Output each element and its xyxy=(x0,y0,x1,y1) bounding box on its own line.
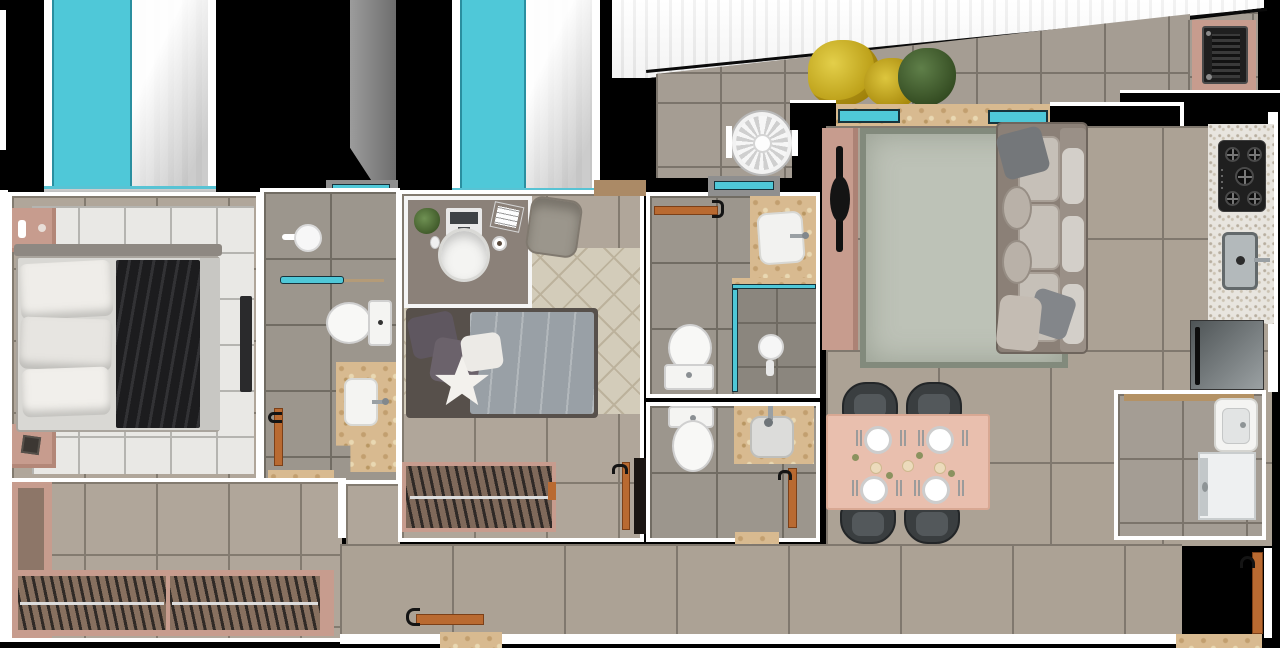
lounge-chair xyxy=(524,195,584,260)
living-window-glass-1 xyxy=(838,109,900,123)
bedroom1-curtain xyxy=(132,0,210,186)
sofa-back-pad-1 xyxy=(1062,148,1084,204)
bathroom2-door-leaf xyxy=(654,206,718,215)
grill-knob2 xyxy=(1206,74,1212,80)
candle-3 xyxy=(934,462,946,474)
sofa-bolster-2 xyxy=(1002,240,1032,284)
plate-1 xyxy=(864,426,892,454)
fan-bracket-right xyxy=(792,128,798,156)
fan-bracket-left xyxy=(726,126,732,158)
burner-4 xyxy=(1247,191,1262,206)
kitchen-faucet-base xyxy=(1236,256,1245,265)
shower-glass-top xyxy=(732,284,816,289)
bedroom2-closet-rod xyxy=(410,496,548,499)
window1-jamb-right xyxy=(208,0,216,186)
bathroom2-vent-window-glass xyxy=(714,181,774,190)
tv-base-icon xyxy=(830,176,850,222)
vanity2-basin xyxy=(756,210,806,265)
hanging-rod-1 xyxy=(20,602,164,605)
burner-center xyxy=(1235,167,1254,186)
entrance-threshold xyxy=(440,632,502,648)
gas-cooktop-icon xyxy=(1218,140,1266,212)
window2-jamb-left xyxy=(452,0,460,188)
bed1-duvet-fold xyxy=(200,258,220,430)
toilet2-button xyxy=(686,372,692,378)
bathroom2-vent-window-frame xyxy=(708,176,780,196)
vent-shaft xyxy=(350,0,396,180)
burner-2 xyxy=(1247,147,1262,162)
bedroom2-window-glass xyxy=(460,0,526,188)
cutlery-1 xyxy=(856,430,858,446)
cutlery-2 xyxy=(918,430,920,446)
service-door-wall xyxy=(1264,548,1272,638)
garnish-dot-2 xyxy=(916,452,923,459)
garnish-dot-1 xyxy=(852,454,859,461)
bedroom2-closet xyxy=(402,462,556,532)
room-closet-hallway xyxy=(8,478,342,642)
washing-machine-icon xyxy=(1198,452,1256,520)
candle-2 xyxy=(902,460,914,472)
wardrobe-section-1 xyxy=(18,576,166,630)
bed1-headboard xyxy=(14,244,222,256)
room-laundry xyxy=(1114,390,1266,540)
room-bedroom-2 xyxy=(398,190,644,542)
bedroom1-door-leaf xyxy=(240,296,252,392)
washer-knob xyxy=(1202,482,1208,492)
bedroom2-curtain xyxy=(526,0,592,188)
mug-coffee xyxy=(497,241,502,246)
exterior-wall-sliver xyxy=(0,10,6,150)
sofa-chaise-pad xyxy=(995,294,1042,352)
bedroom2-shelf xyxy=(594,180,646,196)
shower-enclosure xyxy=(732,278,816,394)
barbecue-grill xyxy=(1202,26,1248,84)
bedroom2-closet-interior xyxy=(406,466,552,528)
desk-chair xyxy=(438,228,490,282)
bedroom2-door-handle xyxy=(612,464,628,474)
burner-1 xyxy=(1225,147,1240,162)
laptop-keyboard xyxy=(450,212,478,224)
vanity2-faucet-base xyxy=(802,232,809,239)
shower-head-stem xyxy=(766,360,774,376)
toilet1-button xyxy=(378,320,383,325)
condenser-fan-icon xyxy=(732,112,792,174)
cyan-towel-bar xyxy=(280,276,344,284)
cutlery-4 xyxy=(914,480,916,496)
hanging-rod-2 xyxy=(172,602,318,605)
room-bathroom-3 xyxy=(646,402,820,542)
cooktop-knobs xyxy=(1221,165,1223,189)
room-bathroom-1 xyxy=(260,188,400,484)
garnish-dot-3 xyxy=(886,472,893,479)
bathroom2-door-handle xyxy=(712,200,724,218)
service-threshold xyxy=(1176,634,1262,648)
toilet1-bowl xyxy=(326,302,372,344)
utility-sink-icon xyxy=(1214,398,1258,452)
wardrobe-section-2 xyxy=(170,576,320,630)
bed2-pillow-white xyxy=(460,331,505,372)
table-lamp-icon xyxy=(18,220,26,238)
wardrobe-bottom xyxy=(12,570,334,636)
hall-floor-patch xyxy=(346,484,400,546)
desk-plant-icon xyxy=(414,208,440,234)
entrance-door-leaf xyxy=(416,614,484,625)
bedroom1-window-glass xyxy=(52,0,132,186)
chair-seat xyxy=(916,512,948,536)
towel-ring-icon xyxy=(294,224,322,252)
bed1-pillow-3 xyxy=(21,366,111,417)
bathroom1-door-handle xyxy=(268,412,282,423)
decor-dot xyxy=(38,224,46,232)
refrigerator-icon xyxy=(1190,320,1264,390)
grill-grate xyxy=(1212,34,1240,78)
window2-jamb-right xyxy=(592,0,600,188)
bed1-pillow-1 xyxy=(19,260,114,321)
floor-plan xyxy=(0,0,1280,648)
shower-glass-side xyxy=(732,289,738,392)
dining-table xyxy=(826,414,990,510)
plate-4 xyxy=(922,476,950,504)
towel-bar-wood xyxy=(344,279,384,282)
papers-icon xyxy=(490,201,525,233)
mug-icon xyxy=(492,236,507,251)
utility-sink-drain xyxy=(1240,422,1246,428)
vanity1-faucet-base xyxy=(382,398,389,405)
plate-3 xyxy=(860,476,888,504)
fridge-handle xyxy=(1195,327,1200,385)
closet-pull xyxy=(548,482,556,500)
bed1-pillow-2 xyxy=(19,316,113,371)
room-master-bedroom xyxy=(8,192,260,484)
grill-knob xyxy=(1206,31,1211,36)
kitchen-faucet xyxy=(1254,258,1270,262)
bed2-frame xyxy=(406,308,598,418)
dining-chair-3 xyxy=(840,504,896,544)
cutlery-3 xyxy=(852,480,854,496)
window1-jamb-left xyxy=(44,0,52,186)
exterior-wall-left xyxy=(0,190,8,642)
room-bathroom-2 xyxy=(646,192,820,398)
candle-1 xyxy=(870,462,882,474)
bathroom3-threshold xyxy=(735,532,779,544)
toilet3-bowl xyxy=(672,420,714,472)
garnish-dot-4 xyxy=(948,470,955,477)
sofa-back-pad-2 xyxy=(1062,216,1084,272)
service-door-handle xyxy=(1240,556,1255,568)
bed1-black-throw xyxy=(116,260,200,428)
dining-chair-4 xyxy=(904,504,960,544)
bathroom3-door-handle xyxy=(778,470,792,480)
chair-seat xyxy=(852,512,884,536)
fan-hub xyxy=(753,134,772,153)
plate-2 xyxy=(926,426,954,454)
candle-tray-icon xyxy=(21,435,41,455)
sofa xyxy=(996,122,1088,354)
vanity3-faucet-base xyxy=(764,418,773,427)
shower-head-icon xyxy=(758,334,784,360)
sofa-bolster-1 xyxy=(1002,186,1032,230)
burner-3 xyxy=(1225,191,1240,206)
entrance-door-handle xyxy=(406,608,420,626)
hall-wall-segment xyxy=(338,478,346,538)
